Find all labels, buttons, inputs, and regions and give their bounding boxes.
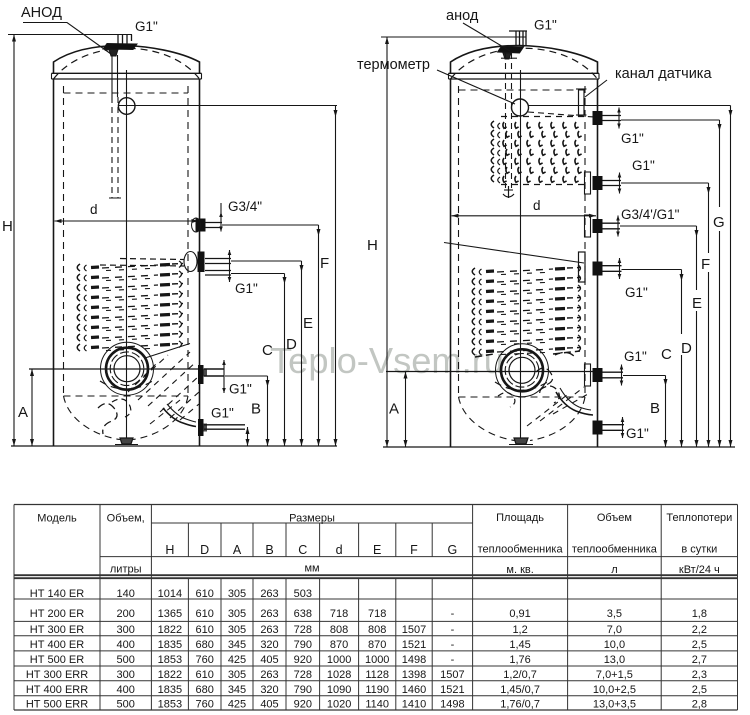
svg-text:НТ 140 ER: НТ 140 ER bbox=[30, 588, 84, 600]
svg-text:7,0: 7,0 bbox=[607, 624, 622, 636]
svg-text:НТ 500 ER: НТ 500 ER bbox=[30, 654, 84, 666]
svg-text:литры: литры bbox=[110, 564, 142, 576]
svg-text:НТ 400 ER: НТ 400 ER bbox=[30, 639, 84, 651]
svg-text:АНОД: АНОД bbox=[21, 5, 62, 21]
svg-text:D: D bbox=[200, 543, 209, 557]
svg-text:1365: 1365 bbox=[158, 608, 182, 620]
svg-text:НТ 400 ERR: НТ 400 ERR bbox=[26, 684, 88, 696]
svg-text:1,45: 1,45 bbox=[509, 639, 530, 651]
svg-text:610: 610 bbox=[196, 624, 214, 636]
svg-text:C: C bbox=[262, 342, 273, 359]
svg-text:3,5: 3,5 bbox=[607, 608, 622, 620]
svg-text:G3/4'/G1": G3/4'/G1" bbox=[621, 207, 680, 222]
svg-text:7,0+1,5: 7,0+1,5 bbox=[596, 669, 633, 681]
svg-text:м. кв.: м. кв. bbox=[506, 564, 533, 576]
svg-text:345: 345 bbox=[228, 639, 246, 651]
svg-text:2,5: 2,5 bbox=[692, 639, 707, 651]
svg-text:1507: 1507 bbox=[402, 624, 426, 636]
svg-text:790: 790 bbox=[294, 639, 312, 651]
svg-text:500: 500 bbox=[117, 698, 135, 710]
svg-text:G1": G1" bbox=[632, 158, 655, 173]
svg-text:1,2/0,7: 1,2/0,7 bbox=[503, 669, 537, 681]
svg-text:1028: 1028 bbox=[327, 669, 351, 681]
svg-text:-: - bbox=[451, 639, 455, 651]
svg-text:2,2: 2,2 bbox=[692, 624, 707, 636]
svg-text:500: 500 bbox=[117, 654, 135, 666]
svg-text:1140: 1140 bbox=[365, 698, 389, 710]
svg-text:10,0+2,5: 10,0+2,5 bbox=[593, 684, 636, 696]
svg-text:НТ 300 ERR: НТ 300 ERR bbox=[26, 669, 88, 681]
svg-text:B: B bbox=[265, 543, 273, 557]
svg-text:G1": G1" bbox=[229, 382, 252, 397]
svg-text:263: 263 bbox=[260, 608, 278, 620]
svg-text:305: 305 bbox=[228, 624, 246, 636]
svg-text:1000: 1000 bbox=[327, 654, 351, 666]
svg-text:1498: 1498 bbox=[440, 698, 464, 710]
svg-text:0,91: 0,91 bbox=[509, 608, 530, 620]
svg-text:263: 263 bbox=[260, 588, 278, 600]
svg-text:718: 718 bbox=[330, 608, 348, 620]
svg-text:d: d bbox=[90, 202, 98, 217]
svg-text:A: A bbox=[18, 404, 28, 421]
svg-text:1853: 1853 bbox=[158, 654, 182, 666]
svg-text:808: 808 bbox=[330, 624, 348, 636]
svg-text:G3/4": G3/4" bbox=[228, 199, 262, 214]
svg-text:канал датчика: канал датчика bbox=[615, 66, 712, 82]
svg-text:1014: 1014 bbox=[158, 588, 182, 600]
svg-text:263: 263 bbox=[260, 669, 278, 681]
svg-text:200: 200 bbox=[117, 608, 135, 620]
svg-text:F: F bbox=[410, 543, 418, 557]
svg-text:263: 263 bbox=[260, 624, 278, 636]
svg-text:D: D bbox=[286, 336, 297, 353]
svg-text:Теплопотери: Теплопотери bbox=[666, 512, 732, 524]
svg-text:638: 638 bbox=[294, 608, 312, 620]
svg-text:B: B bbox=[251, 401, 261, 418]
svg-text:E: E bbox=[692, 295, 702, 312]
svg-text:1190: 1190 bbox=[365, 684, 389, 696]
svg-text:G1": G1" bbox=[211, 406, 234, 421]
svg-text:920: 920 bbox=[294, 654, 312, 666]
svg-text:1822: 1822 bbox=[158, 669, 182, 681]
svg-text:A: A bbox=[233, 543, 242, 557]
svg-text:D: D bbox=[681, 340, 692, 357]
svg-text:Площадь: Площадь bbox=[496, 512, 544, 524]
svg-text:термометр: термометр bbox=[357, 57, 430, 73]
svg-text:G1": G1" bbox=[625, 285, 648, 300]
svg-text:680: 680 bbox=[196, 639, 214, 651]
svg-text:425: 425 bbox=[228, 654, 246, 666]
svg-text:728: 728 bbox=[294, 669, 312, 681]
svg-text:728: 728 bbox=[294, 624, 312, 636]
svg-text:1822: 1822 bbox=[158, 624, 182, 636]
svg-text:760: 760 bbox=[196, 698, 214, 710]
svg-text:13,0+3,5: 13,0+3,5 bbox=[593, 698, 636, 710]
svg-text:1090: 1090 bbox=[327, 684, 351, 696]
svg-text:НТ 300 ER: НТ 300 ER bbox=[30, 624, 84, 636]
svg-text:G1": G1" bbox=[534, 18, 557, 33]
svg-text:E: E bbox=[303, 315, 313, 332]
svg-text:-: - bbox=[451, 624, 455, 636]
svg-text:H: H bbox=[367, 237, 378, 254]
svg-text:1128: 1128 bbox=[365, 669, 389, 681]
svg-text:320: 320 bbox=[260, 684, 278, 696]
svg-text:680: 680 bbox=[196, 684, 214, 696]
svg-text:2,8: 2,8 bbox=[692, 698, 707, 710]
svg-text:анод: анод bbox=[446, 8, 479, 24]
svg-text:300: 300 bbox=[117, 624, 135, 636]
svg-text:H: H bbox=[165, 543, 174, 557]
svg-text:400: 400 bbox=[117, 639, 135, 651]
svg-text:1460: 1460 bbox=[402, 684, 426, 696]
svg-text:G1": G1" bbox=[624, 349, 647, 364]
svg-text:425: 425 bbox=[228, 698, 246, 710]
svg-text:320: 320 bbox=[260, 639, 278, 651]
svg-text:Модель: Модель bbox=[37, 513, 77, 525]
svg-text:10,0: 10,0 bbox=[604, 639, 625, 651]
svg-text:760: 760 bbox=[196, 654, 214, 666]
svg-text:d: d bbox=[336, 543, 343, 557]
svg-text:140: 140 bbox=[117, 588, 135, 600]
svg-text:870: 870 bbox=[368, 639, 386, 651]
svg-text:1835: 1835 bbox=[158, 684, 182, 696]
svg-text:НТ 500 ERR: НТ 500 ERR bbox=[26, 698, 88, 710]
svg-text:13,0: 13,0 bbox=[604, 654, 625, 666]
svg-text:1521: 1521 bbox=[440, 684, 464, 696]
svg-text:808: 808 bbox=[368, 624, 386, 636]
svg-text:610: 610 bbox=[196, 608, 214, 620]
svg-text:-: - bbox=[451, 608, 455, 620]
svg-text:305: 305 bbox=[228, 588, 246, 600]
svg-text:1835: 1835 bbox=[158, 639, 182, 651]
svg-text:1521: 1521 bbox=[402, 639, 426, 651]
svg-text:1,8: 1,8 bbox=[692, 608, 707, 620]
svg-text:мм: мм bbox=[304, 563, 319, 575]
svg-text:1410: 1410 bbox=[402, 698, 426, 710]
svg-text:870: 870 bbox=[330, 639, 348, 651]
svg-text:1,76: 1,76 bbox=[509, 654, 530, 666]
svg-text:G: G bbox=[448, 543, 458, 557]
svg-text:кВт/24 ч: кВт/24 ч bbox=[679, 564, 720, 576]
svg-text:2,5: 2,5 bbox=[692, 684, 707, 696]
svg-text:1,45/0,7: 1,45/0,7 bbox=[500, 684, 540, 696]
svg-text:405: 405 bbox=[260, 698, 278, 710]
svg-text:теплообменника: теплообменника bbox=[478, 544, 564, 556]
svg-text:2,7: 2,7 bbox=[692, 654, 707, 666]
svg-text:E: E bbox=[373, 543, 381, 557]
svg-text:C: C bbox=[661, 346, 672, 363]
svg-text:C: C bbox=[298, 543, 307, 557]
svg-text:1507: 1507 bbox=[440, 669, 464, 681]
svg-text:G: G bbox=[713, 214, 725, 231]
svg-text:920: 920 bbox=[294, 698, 312, 710]
svg-text:F: F bbox=[320, 255, 329, 272]
svg-text:400: 400 bbox=[117, 684, 135, 696]
svg-text:Объем,: Объем, bbox=[107, 513, 145, 525]
svg-text:НТ 200 ER: НТ 200 ER bbox=[30, 608, 84, 620]
svg-text:610: 610 bbox=[196, 588, 214, 600]
svg-text:1000: 1000 bbox=[365, 654, 389, 666]
svg-text:1398: 1398 bbox=[402, 669, 426, 681]
svg-text:H: H bbox=[2, 218, 13, 235]
svg-text:2,3: 2,3 bbox=[692, 669, 707, 681]
svg-text:F: F bbox=[701, 256, 710, 273]
svg-text:G1": G1" bbox=[135, 19, 158, 34]
svg-text:Размеры: Размеры bbox=[289, 513, 335, 525]
svg-text:G1": G1" bbox=[235, 281, 258, 296]
svg-text:405: 405 bbox=[260, 654, 278, 666]
svg-text:-: - bbox=[451, 654, 455, 666]
svg-text:718: 718 bbox=[368, 608, 386, 620]
svg-text:1498: 1498 bbox=[402, 654, 426, 666]
svg-text:305: 305 bbox=[228, 669, 246, 681]
svg-text:A: A bbox=[389, 401, 399, 418]
svg-text:1,76/0,7: 1,76/0,7 bbox=[500, 698, 540, 710]
svg-text:1853: 1853 bbox=[158, 698, 182, 710]
svg-text:Объем: Объем bbox=[597, 512, 632, 524]
svg-text:305: 305 bbox=[228, 608, 246, 620]
svg-text:G1": G1" bbox=[626, 426, 649, 441]
svg-text:610: 610 bbox=[196, 669, 214, 681]
svg-text:1,2: 1,2 bbox=[512, 624, 527, 636]
svg-text:в сутки: в сутки bbox=[681, 544, 717, 556]
svg-text:B: B bbox=[650, 400, 660, 417]
svg-text:1020: 1020 bbox=[327, 698, 351, 710]
svg-text:300: 300 bbox=[117, 669, 135, 681]
svg-text:345: 345 bbox=[228, 684, 246, 696]
svg-text:теплообменника: теплообменника bbox=[572, 544, 658, 556]
svg-text:503: 503 bbox=[294, 588, 312, 600]
svg-text:790: 790 bbox=[294, 684, 312, 696]
svg-text:л: л bbox=[611, 564, 617, 576]
svg-text:d: d bbox=[533, 198, 541, 213]
svg-text:G1": G1" bbox=[621, 131, 644, 146]
